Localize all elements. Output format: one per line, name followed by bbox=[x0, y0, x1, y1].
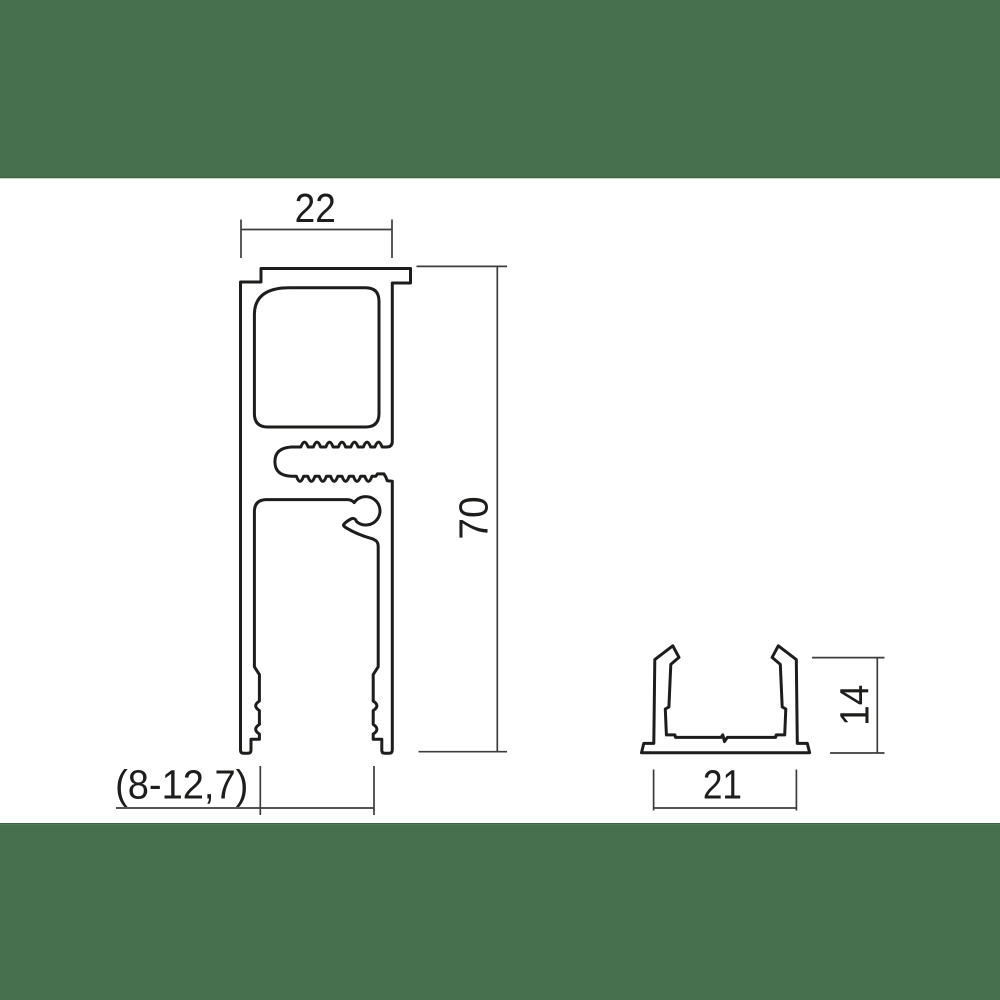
svg-text:14: 14 bbox=[833, 685, 878, 726]
svg-text:22: 22 bbox=[295, 187, 336, 232]
svg-text:(8-12,7): (8-12,7) bbox=[115, 762, 248, 807]
svg-text:21: 21 bbox=[703, 763, 742, 808]
svg-text:70: 70 bbox=[452, 496, 497, 539]
